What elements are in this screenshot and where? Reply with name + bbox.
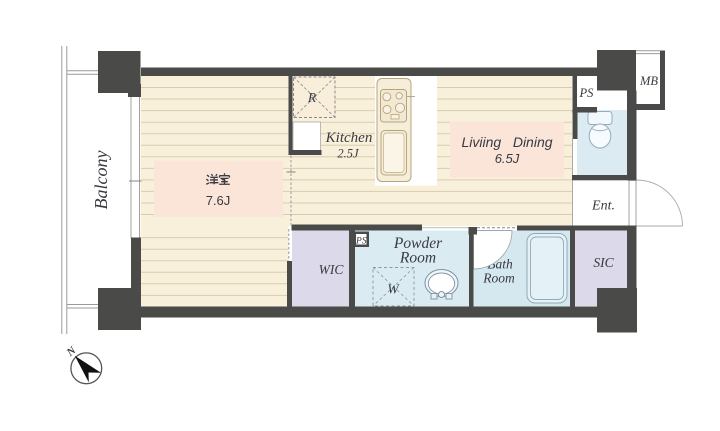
svg-text:WIC: WIC xyxy=(319,262,345,277)
svg-text:7.6J: 7.6J xyxy=(206,193,231,208)
svg-text:2.5J: 2.5J xyxy=(337,147,360,161)
svg-text:Room: Room xyxy=(482,271,515,286)
svg-text:PS: PS xyxy=(579,86,595,100)
svg-text:SIC: SIC xyxy=(593,255,614,270)
svg-text:Balcony: Balcony xyxy=(91,151,111,210)
svg-text:Kitchen: Kitchen xyxy=(325,130,373,146)
svg-text:W: W xyxy=(387,282,400,297)
svg-text:Room: Room xyxy=(399,250,436,267)
svg-text:Ent.: Ent. xyxy=(591,199,615,214)
svg-text:PS: PS xyxy=(355,237,367,247)
svg-text:MB: MB xyxy=(639,74,658,88)
svg-text:N: N xyxy=(64,344,79,360)
svg-text:Liviing Dining: Liviing Dining xyxy=(461,134,552,150)
svg-text:6.5J: 6.5J xyxy=(495,151,520,166)
svg-text:R: R xyxy=(307,90,317,105)
